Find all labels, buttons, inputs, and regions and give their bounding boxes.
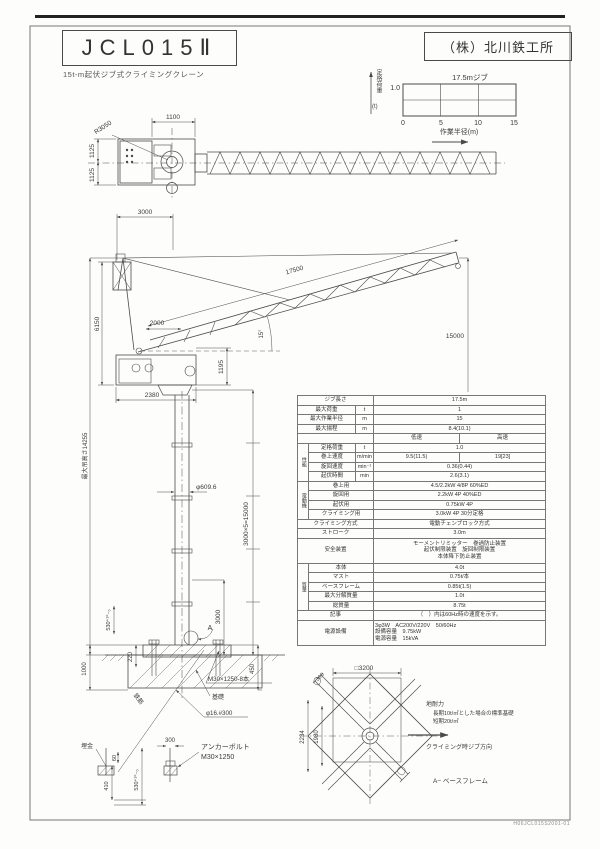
note-bearing-line3: 短期20t/㎡ [433, 717, 459, 725]
spec-value: 8.4(10.1) [374, 424, 546, 434]
spec-row: 旋回速度min⁻¹0.36(0.44) [298, 462, 546, 472]
spec-label: 最大荷重 [298, 405, 356, 415]
label-climb-direction: クライミング時ジブ方向 [426, 743, 492, 751]
chart-tick-15: 15 [510, 120, 518, 127]
spec-value: 2.2kW 4P 40%ED [374, 491, 546, 501]
spec-unit: m/min [356, 453, 374, 463]
spec-label: 巻上速度 [309, 453, 356, 463]
spec-label: 巻上用 [309, 481, 374, 491]
spec-value: 15 [374, 415, 546, 425]
spec-unit: t [356, 405, 374, 415]
label-rebar-spec: φ16.#300 [206, 710, 233, 717]
dim-hook-height: 最大吊高さ14255 [81, 432, 89, 479]
spec-value: 17.5m [374, 396, 546, 406]
spec-col-low: 低速 [374, 434, 460, 444]
spec-label-power: 電源設備 [298, 620, 374, 645]
chart-xlabel: 作業半径(m) [440, 127, 479, 136]
note-bearing-title: 地耐力 [426, 700, 444, 708]
label-plan-caption: A− ベースフレーム [433, 777, 488, 785]
spec-row: マスト0.75t/本 [298, 573, 546, 583]
spec-row: 記事（ ）内は60Hz時の速度を示す。 [298, 611, 546, 621]
dim-530: 530⁺¹⁰₋₀ [105, 609, 112, 630]
dim-2234: 2234 [300, 730, 306, 744]
dim-300: 300 [165, 738, 176, 744]
spec-group-mass: 質量 [298, 563, 309, 611]
power-line: 電源容量 15kVA [375, 636, 544, 642]
note-bearing-line2: 長期10t/㎡とした場合の標準基礎 [433, 709, 514, 717]
spec-value: 1.0 [374, 443, 546, 453]
spec-label: ジブ長さ [298, 396, 374, 406]
spec-row: 最大揚程m8.4(10.1) [298, 424, 546, 434]
spec-value: 1.0t [374, 592, 546, 602]
spec-row: 最大荷重t1 [298, 405, 546, 415]
spec-label: 本体 [309, 563, 374, 573]
spec-row: 最大作業半径m15 [298, 415, 546, 425]
spec-row: 質量本体4.0t [298, 563, 546, 573]
spec-value: 0.85t(1.5) [374, 582, 546, 592]
drawing-number: H06JCL015S2001-01 [513, 821, 570, 827]
spec-col-high: 高速 [460, 434, 546, 444]
spec-unit: m [356, 424, 374, 434]
spec-label: 旋回用 [309, 491, 374, 501]
spec-label: 最大作業半径 [298, 415, 356, 425]
spec-value: 19[23] [460, 453, 546, 463]
spec-value-power: 3φ3W AC200V/220V 50/60Hz 設備容量 9.75kW 電源容… [374, 620, 546, 645]
chart-ymax: 1.0 [390, 85, 400, 92]
spec-row: クライミング方式電動チェンブロック方式 [298, 519, 546, 529]
spec-row: 起伏時間min2.6(3.1) [298, 472, 546, 482]
spec-label-note: 記事 [298, 611, 374, 621]
top-view-dims [94, 118, 195, 185]
spec-row: ジブ長さ17.5m [298, 396, 546, 406]
spec-label: 起伏用 [309, 500, 374, 510]
dim-1000: 1000 [82, 662, 88, 676]
spec-label: ストローク [298, 529, 374, 539]
spec-row: 総質量8.75t [298, 601, 546, 611]
spec-row: 起伏用0.75kW 4P [298, 500, 546, 510]
chart-yunit: (t) [372, 104, 378, 110]
spec-row: 電動機巻上用4.5/2.2kW 4/8P 60%ED [298, 481, 546, 491]
dim-220: 220 [128, 651, 134, 662]
label-anchor-bolt-1: アンカーボルト [201, 743, 250, 751]
dim-17500: 17500 [285, 265, 305, 277]
spec-row: 旋回用2.2kW 4P 40%ED [298, 491, 546, 501]
foundation-dims [86, 645, 272, 772]
spec-unit: m [356, 415, 374, 425]
spec-value-safety: モーメントリミッター 巻過防止装置 起伏制限装置 旋回制限装置 本体降下防止装置 [374, 538, 546, 563]
dim-410: 410 [104, 781, 110, 790]
break-scribble-2 [398, 767, 406, 775]
dim-1195: 1195 [218, 360, 225, 374]
spec-label: 定格荷重 [309, 443, 356, 453]
spec-group-performance: 性能 [298, 443, 309, 481]
model-title-box: JCL015Ⅱ [62, 30, 237, 66]
spec-row: ベースフレーム0.85t(1.5) [298, 582, 546, 592]
anchor-detail [96, 746, 199, 805]
dim-1980: 1980 [314, 730, 320, 744]
plan-view-texts: □3200 2234 1980 300 地耐力 長期10t/㎡とした場合の標準基… [300, 665, 514, 785]
dim-60: 60 [112, 755, 118, 761]
spec-group-motor: 電動機 [298, 481, 309, 519]
foundation-section [86, 640, 285, 772]
spec-value: 0.75t/本 [374, 573, 546, 583]
crane-subtitle: 15t-m起伏ジブ式クライミングクレーン [63, 69, 204, 80]
spec-value: 3.0m [374, 529, 546, 539]
company-name: （株）北川鉄工所 [442, 37, 554, 56]
spec-row: 電源設備 3φ3W AC200V/220V 50/60Hz 設備容量 9.75k… [298, 620, 546, 645]
dim-angle-15: 15° [259, 329, 265, 339]
dim-530b: 530⁺¹⁰₋₀ [133, 769, 140, 790]
label-anchor-bolt-spec: M30×1250-8本 [208, 675, 249, 683]
label-rebar: 鉄筋 [132, 692, 146, 706]
spec-row: 性能定格荷重t1.0 [298, 443, 546, 453]
spec-label: 最大揚程 [298, 424, 356, 434]
spec-label: 旋回速度 [309, 462, 356, 472]
spec-value: 0.36(0.44) [374, 462, 546, 472]
spec-value: 4.5/2.2kW 4/8P 60%ED [374, 481, 546, 491]
spec-label-safety: 安全装置 [298, 538, 374, 563]
spec-row: 安全装置 モーメントリミッター 巻過防止装置 起伏制限装置 旋回制限装置 本体降… [298, 538, 546, 563]
dim-15000: 15000 [446, 333, 464, 340]
safety-line: 本体降下防止装置 [375, 554, 544, 560]
spec-label: 最大分解質量 [309, 592, 374, 602]
spec-label: クライミング方式 [298, 519, 374, 529]
spec-value: 4.0t [374, 563, 546, 573]
chart-ylabel: 定格荷重 [375, 69, 381, 93]
dim-2380: 2380 [145, 392, 160, 399]
spec-value: 3.0kW 4P 30分定格 [374, 510, 546, 520]
company-box: （株）北川鉄工所 [424, 32, 572, 61]
spec-row: 最大分解質量1.0t [298, 592, 546, 602]
chart-tick-5: 5 [439, 120, 443, 127]
load-chart-labels: 17.5mジブ 1.0 0 5 10 15 作業半径(m) [390, 72, 518, 136]
dim-6150: 6150 [94, 316, 101, 331]
label-kiso: 基礎 [212, 693, 224, 701]
spec-row: クライミング用3.0kW 4P 30分定格 [298, 510, 546, 520]
chart-tick-0: 0 [401, 120, 405, 127]
spec-value-note: （ ）内は60Hz時の速度を示す。 [374, 611, 546, 621]
spec-value: 2.6(3.1) [374, 472, 546, 482]
section-marker-a: A [208, 625, 213, 632]
spec-label: マスト [309, 573, 374, 583]
spec-value: 電動チェンブロック方式 [374, 519, 546, 529]
label-anchor-bolt-2: M30×1250 [201, 754, 234, 761]
dim-3000-top: 3000 [138, 209, 153, 216]
dim-450: 450 [250, 663, 256, 674]
chart-title: 17.5mジブ [452, 72, 488, 82]
dim-2000: 2000 [150, 320, 165, 327]
spec-unit: min⁻¹ [356, 462, 374, 472]
drawing-sheet: 17.5mジブ 1.0 0 5 10 15 作業半径(m) [0, 0, 600, 849]
model-title: JCL015Ⅱ [82, 35, 218, 61]
spec-row: 低速高速 [298, 434, 546, 444]
dim-sq3200: □3200 [355, 665, 374, 672]
spec-value: 9.5(11.5) [374, 453, 460, 463]
spec-value: 8.75t [374, 601, 546, 611]
dim-3000-bottom: 3000 [215, 609, 222, 624]
anchor-detail-dims [112, 746, 199, 805]
spec-row: 巻上速度m/min9.5(11.5)19[23] [298, 453, 546, 463]
deck-bolts [126, 149, 133, 163]
spec-label: クライミング用 [309, 510, 374, 520]
plan-view [300, 668, 448, 804]
label-umegane: 埋金 [81, 742, 93, 750]
chart-tick-10: 10 [474, 120, 482, 127]
spec-table: ジブ長さ17.5m 最大荷重t1 最大作業半径m15 最大揚程m8.4(10.1… [297, 395, 546, 646]
dim-1125b: 1125 [89, 168, 96, 182]
dim-mast-sections: 3000×5=15000 [243, 502, 250, 546]
spec-unit: min [356, 472, 374, 482]
spec-unit: t [356, 443, 374, 453]
dim-300-beam: 300 [315, 672, 326, 683]
spec-row: ストローク3.0m [298, 529, 546, 539]
dim-mast-dia: φ609.6 [196, 484, 217, 491]
spec-label: 総質量 [309, 601, 374, 611]
dim-1125a: 1125 [89, 144, 96, 158]
spec-label: 起伏時間 [309, 472, 356, 482]
dim-1100: 1100 [166, 114, 180, 121]
spec-value: 0.75kW 4P [374, 500, 546, 510]
spec-value: 1 [374, 405, 546, 415]
spec-label: ベースフレーム [309, 582, 374, 592]
dim-r3050: R3050 [93, 119, 113, 136]
